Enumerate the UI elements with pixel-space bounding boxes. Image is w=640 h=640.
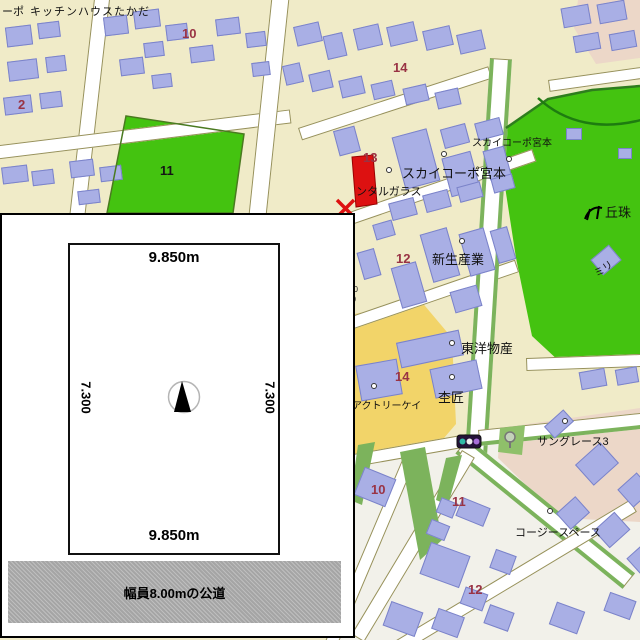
- label-corp-partial: ーポ: [2, 6, 24, 18]
- label-sky-corp-large: スカイコーポ宮本: [402, 167, 506, 181]
- plot-diagram-panel: 9.850m 9.850m 7.300 7.300 幅員8.00mの公道: [0, 213, 355, 638]
- label-okadama-park: 丘珠: [605, 206, 631, 220]
- building: [251, 61, 271, 77]
- block-number-12-mid: 12: [396, 251, 410, 266]
- label-kitchen-house: キッチンハウスたかだ: [30, 6, 150, 18]
- poi-dot: [449, 340, 455, 346]
- building: [5, 24, 33, 47]
- building: [245, 31, 267, 48]
- building: [282, 62, 304, 86]
- building: [37, 21, 61, 40]
- block-number-2: 2: [18, 97, 25, 112]
- building: [356, 248, 381, 280]
- north-compass-icon: [164, 377, 204, 417]
- dimension-bottom: 9.850m: [68, 527, 280, 544]
- building: [77, 189, 101, 206]
- building: [402, 84, 429, 106]
- poi-dot: [441, 151, 447, 157]
- building: [615, 366, 639, 386]
- label-shinsei-sangyo: 新生産業: [432, 253, 484, 267]
- dimension-right: 7.300: [263, 375, 278, 421]
- building: [440, 123, 470, 149]
- block-number-11-bottom: 11: [452, 494, 466, 509]
- front-road-label: 幅員8.00mの公道: [124, 583, 226, 602]
- label-toyo-bussan: 東洋物産: [461, 342, 513, 356]
- label-sky-corp-small: スカイコーポ宮本: [472, 138, 552, 149]
- building: [308, 70, 333, 92]
- building: [31, 169, 55, 187]
- label-cozy-space: コージースペース: [515, 527, 601, 539]
- building: [566, 128, 582, 140]
- building: [333, 126, 361, 157]
- poi-dot: [449, 374, 455, 380]
- building: [323, 32, 348, 60]
- map-canvas[interactable]: ーポ キッチンハウスたかだ 10 2 11 14 スカイコーポ宮本 13 スカイ…: [0, 0, 640, 640]
- block-number-10-bottom: 10: [371, 482, 385, 497]
- poi-dot: [506, 156, 512, 162]
- building: [579, 368, 608, 390]
- label-rental-glass: ンタルガラス: [356, 186, 421, 198]
- label-sun-grace: サングレース3: [537, 436, 609, 448]
- building: [45, 55, 67, 73]
- poi-dot: [371, 383, 377, 389]
- building: [39, 91, 63, 110]
- block-number-14-top: 14: [393, 60, 407, 75]
- building: [422, 25, 454, 51]
- building: [215, 17, 241, 37]
- building: [338, 76, 365, 99]
- label-factory-kei: アクトリーケイ: [352, 401, 421, 412]
- building: [99, 165, 123, 183]
- front-road-bar: 幅員8.00mの公道: [8, 561, 341, 623]
- block-number-12-bottom: 12: [468, 582, 482, 597]
- block-number-13: 13: [363, 150, 377, 165]
- building: [372, 220, 396, 241]
- building: [151, 73, 173, 89]
- dimension-left: 7.300: [79, 375, 94, 421]
- block-number-10-top: 10: [182, 26, 196, 41]
- poi-dot: [386, 167, 392, 173]
- building: [456, 29, 486, 54]
- building: [386, 21, 418, 47]
- building: [293, 21, 323, 46]
- building: [119, 57, 145, 77]
- poi-dot: [547, 508, 553, 514]
- dimension-top: 9.850m: [68, 249, 280, 266]
- building: [189, 45, 215, 64]
- building: [69, 159, 95, 179]
- building: [143, 41, 165, 58]
- building: [353, 23, 383, 50]
- poi-dot: [459, 238, 465, 244]
- building: [1, 164, 29, 184]
- building: [7, 58, 39, 82]
- poi-dot: [562, 418, 568, 424]
- building: [434, 88, 461, 110]
- label-mokusho: 杢匠: [438, 391, 464, 405]
- block-number-11-park: 11: [160, 163, 174, 178]
- building: [618, 148, 632, 159]
- block-number-14-mid: 14: [395, 369, 409, 384]
